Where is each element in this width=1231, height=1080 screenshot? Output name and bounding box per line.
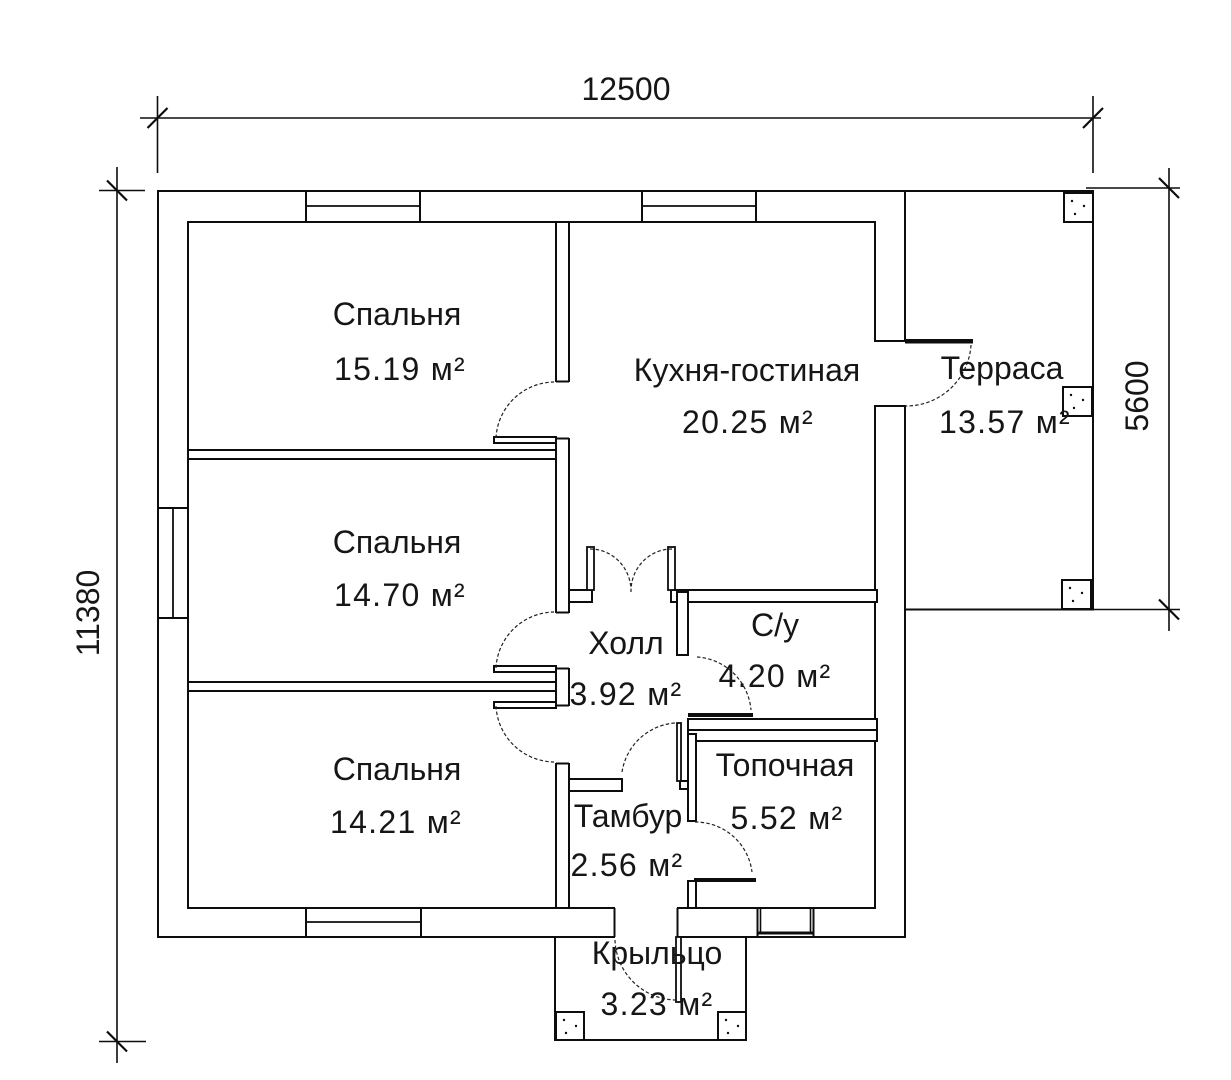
svg-text:3.92 м²: 3.92 м² (570, 676, 683, 712)
svg-text:20.25 м²: 20.25 м² (682, 404, 814, 440)
svg-text:Спальня: Спальня (333, 296, 462, 332)
svg-text:Топочная: Топочная (716, 747, 855, 783)
svg-text:Холл: Холл (588, 625, 663, 661)
svg-text:Спальня: Спальня (333, 751, 462, 787)
svg-text:С/у: С/у (751, 607, 799, 643)
svg-text:5.52 м²: 5.52 м² (731, 800, 844, 836)
svg-text:11380: 11380 (70, 570, 106, 657)
svg-text:14.70 м²: 14.70 м² (334, 577, 466, 613)
svg-text:Крыльцо: Крыльцо (592, 935, 723, 971)
svg-text:3.23 м²: 3.23 м² (601, 986, 714, 1022)
svg-text:Кухня-гостиная: Кухня-гостиная (634, 352, 860, 388)
svg-text:12500: 12500 (582, 71, 671, 107)
svg-text:13.57 м²: 13.57 м² (939, 404, 1071, 440)
svg-text:Терраса: Терраса (941, 350, 1064, 386)
svg-text:2.56 м²: 2.56 м² (571, 847, 684, 883)
svg-text:4.20 м²: 4.20 м² (719, 658, 832, 694)
svg-text:Спальня: Спальня (333, 524, 462, 560)
svg-text:5600: 5600 (1119, 360, 1155, 431)
svg-text:Тамбур: Тамбур (574, 798, 683, 834)
svg-text:15.19 м²: 15.19 м² (334, 351, 466, 387)
svg-text:14.21 м²: 14.21 м² (330, 804, 462, 840)
